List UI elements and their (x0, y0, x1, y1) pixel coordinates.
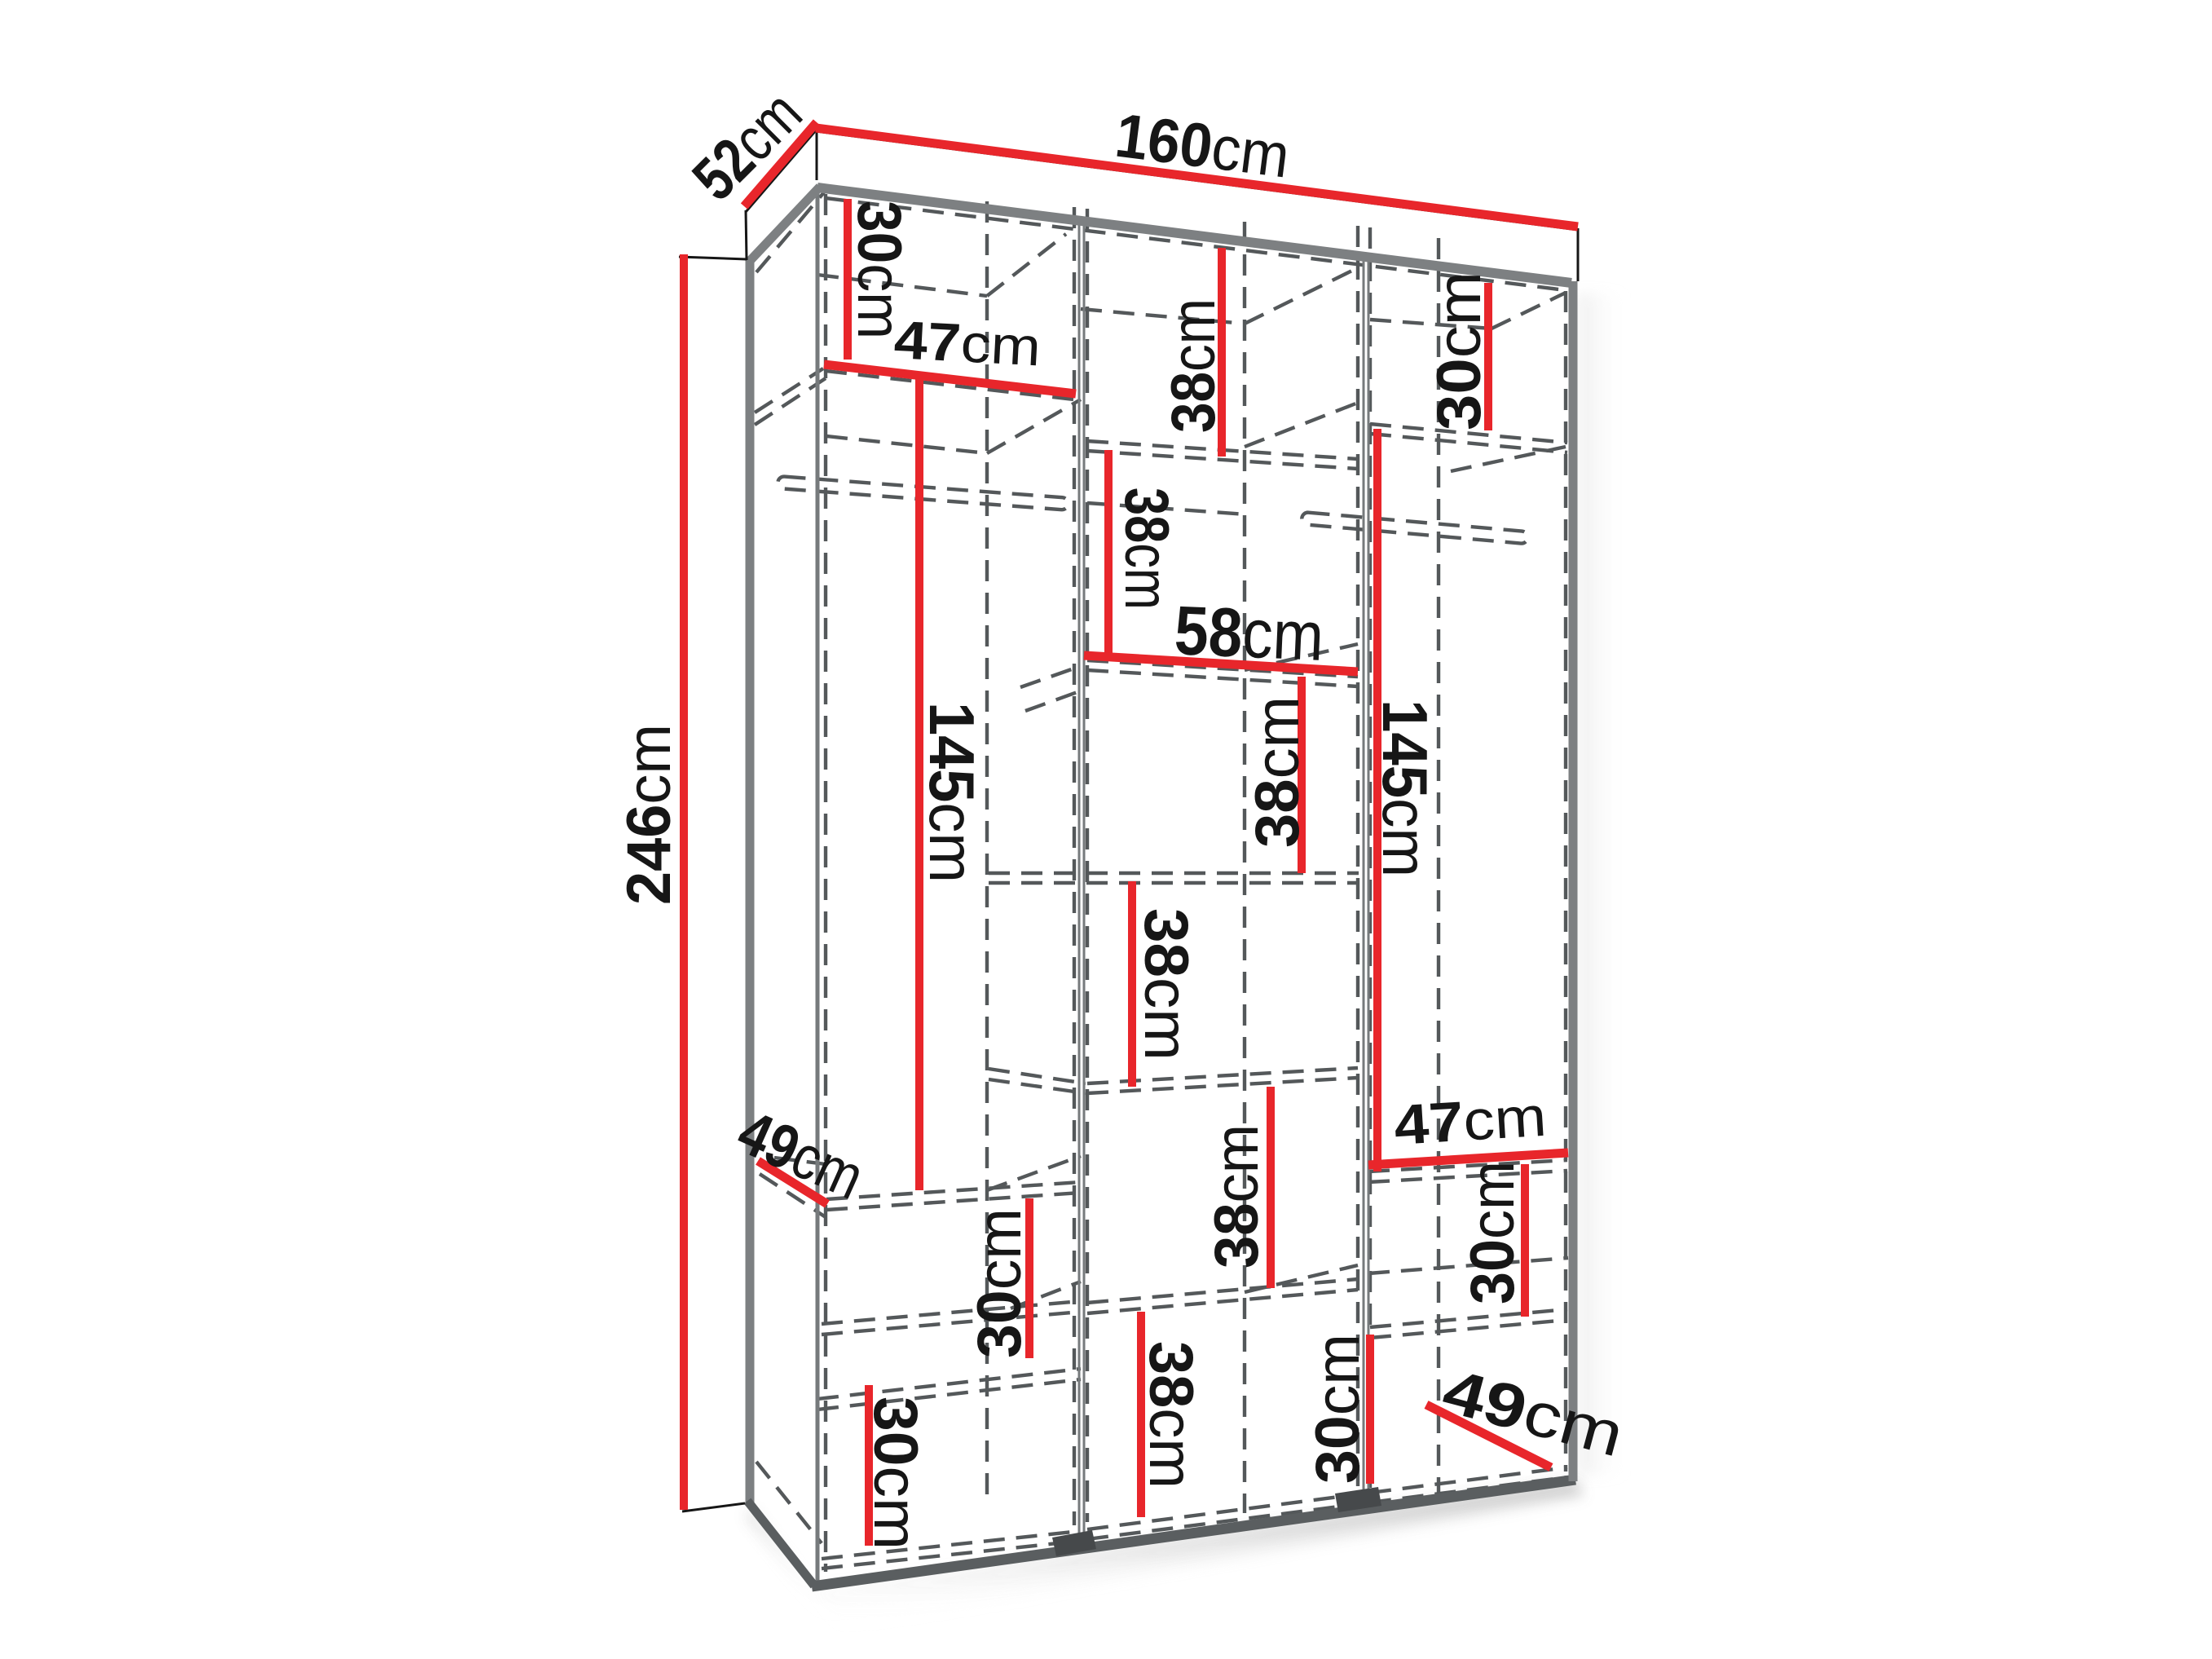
svg-text:58cm: 58cm (1173, 592, 1325, 676)
svg-text:30cm: 30cm (1458, 1161, 1527, 1304)
svg-text:30cm: 30cm (1425, 271, 1494, 430)
svg-text:246cm: 246cm (615, 724, 684, 905)
svg-text:38cm: 38cm (1202, 1124, 1271, 1269)
svg-text:30cm: 30cm (861, 1396, 930, 1550)
svg-text:38cm: 38cm (1131, 908, 1201, 1061)
svg-text:145cm: 145cm (1369, 699, 1441, 877)
svg-text:38cm: 38cm (1159, 298, 1228, 433)
svg-text:38cm: 38cm (1112, 488, 1181, 610)
svg-text:145cm: 145cm (916, 702, 988, 883)
svg-text:38cm: 38cm (1136, 1341, 1205, 1489)
svg-text:47cm: 47cm (892, 309, 1042, 377)
svg-text:38cm: 38cm (1243, 696, 1312, 848)
svg-text:47cm: 47cm (1392, 1085, 1548, 1157)
svg-text:30cm: 30cm (1303, 1334, 1373, 1484)
svg-text:30cm: 30cm (965, 1208, 1034, 1358)
